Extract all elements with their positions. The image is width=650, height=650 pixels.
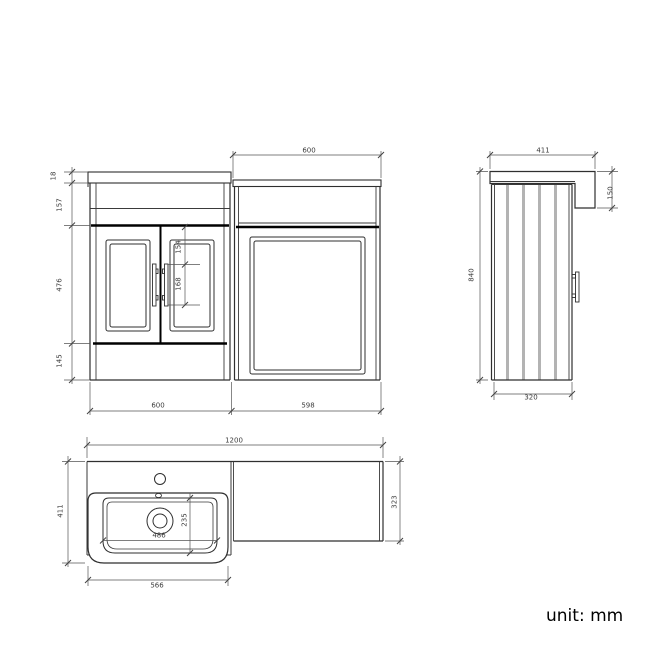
side-slat	[506, 185, 509, 380]
side-view	[476, 151, 618, 400]
side-dimension-lines	[476, 151, 618, 400]
unit-note: unit: mm	[546, 606, 623, 626]
dim-total-height: 840	[469, 268, 476, 281]
vanity-worktop	[88, 172, 231, 183]
dim-wc-unit-depth: 323	[392, 495, 399, 508]
dim-wc-width: 598	[301, 403, 314, 410]
dim-worktop-drop: 150	[608, 186, 615, 199]
dim-basin-unit-depth: 411	[58, 504, 65, 517]
side-worktop-profile	[490, 172, 595, 209]
side-slat	[522, 185, 525, 380]
side-cabinet-outline	[492, 185, 573, 381]
dim-total-width: 1200	[225, 438, 243, 445]
dim-handle-length: 168	[176, 277, 183, 290]
front-view	[64, 151, 384, 415]
dim-bowl-depth: 235	[182, 513, 189, 526]
dim-vanity-width: 600	[151, 403, 164, 410]
dim-worktop-depth: 411	[536, 148, 549, 155]
side-handle	[572, 272, 579, 302]
wc-cabinet-outline	[235, 187, 381, 381]
plan-wc-section	[234, 462, 384, 542]
side-slat	[554, 185, 557, 380]
front-dimension-lines	[64, 151, 381, 415]
side-slat	[538, 185, 541, 380]
side-dimension-ticks	[477, 152, 615, 397]
dim-panel-to-handle: 154	[176, 240, 183, 253]
dim-cabinet-depth: 320	[524, 395, 537, 402]
dim-fascia-height: 157	[57, 198, 64, 211]
plan-view	[62, 437, 404, 586]
dim-worktop-thickness: 18	[51, 172, 58, 181]
dim-basin-width: 566	[150, 583, 163, 590]
dim-bowl-width: 486	[152, 533, 165, 540]
tap-hole	[155, 474, 166, 485]
wc-worktop	[233, 180, 381, 187]
front-dimension-ticks	[69, 152, 384, 414]
wc-door-panel	[250, 237, 365, 374]
technical-drawing-canvas: 18 157 476 145 154 168 600 598 600 411 1…	[0, 0, 650, 650]
drawing-linework	[0, 0, 650, 650]
dim-wc-top-width: 600	[302, 148, 315, 155]
dim-plinth-height: 145	[57, 354, 64, 367]
dim-door-height: 476	[57, 278, 64, 291]
